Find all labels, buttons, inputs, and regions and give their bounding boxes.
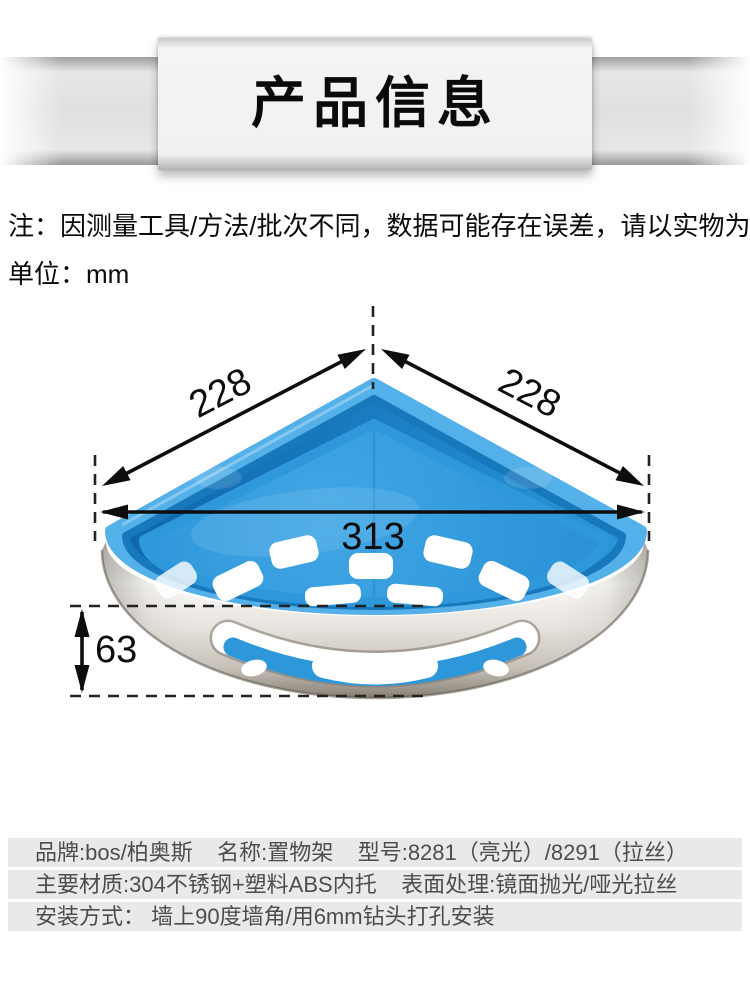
unit-note: 单位：mm <box>8 254 129 291</box>
dim-wall-height: 63 <box>95 629 137 671</box>
spec-row-material-finish: 主要材质:304不锈钢+塑料ABS内托 表面处理:镜面抛光/哑光拉丝 <box>8 870 742 899</box>
dim-front-width: 313 <box>341 516 404 558</box>
banner-ribbon-right-wing <box>575 57 750 165</box>
banner-ribbon: 产品信息 <box>0 0 750 190</box>
banner-panel: 产品信息 <box>158 38 592 170</box>
product-illustration: 228 228 313 63 <box>40 295 710 710</box>
product-info-page: 产品信息 注：因测量工具/方法/批次不同，数据可能存在误差，请以实物为准！ 单位… <box>0 0 750 1000</box>
spec-table: 品牌:bos/柏奥斯 名称:置物架 型号:8281（亮光）/8291（拉丝） 主… <box>8 838 742 934</box>
dim-right-edge: 228 <box>492 360 568 427</box>
spec-row-installation: 安装方式： 墙上90度墙角/用6mm钻头打孔安装 <box>8 902 742 931</box>
banner-ribbon-left-wing <box>0 57 175 165</box>
dim-left-edge: 228 <box>183 360 259 427</box>
page-title: 产品信息 <box>158 38 592 168</box>
spec-row-brand-name-model: 品牌:bos/柏奥斯 名称:置物架 型号:8281（亮光）/8291（拉丝） <box>8 838 742 867</box>
measurement-note: 注：因测量工具/方法/批次不同，数据可能存在误差，请以实物为准！ <box>8 206 750 243</box>
